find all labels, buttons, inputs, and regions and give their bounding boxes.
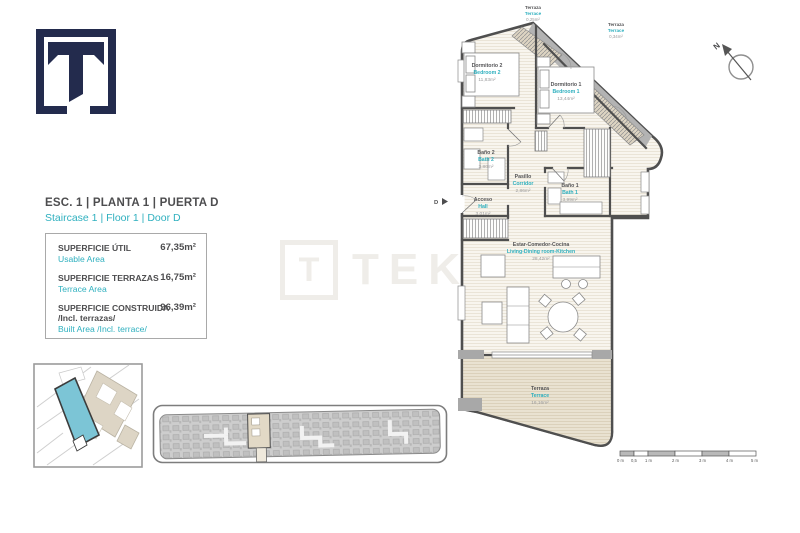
svg-text:0,25m²: 0,25m² bbox=[526, 17, 540, 22]
svg-text:3,80m²: 3,80m² bbox=[479, 164, 494, 170]
svg-text:5 m: 5 m bbox=[751, 458, 758, 463]
svg-text:0,5: 0,5 bbox=[631, 458, 637, 463]
svg-text:Bath 1: Bath 1 bbox=[562, 190, 578, 196]
company-logo bbox=[33, 28, 121, 120]
svg-text:Acceso: Acceso bbox=[474, 197, 492, 203]
svg-text:Pasillo: Pasillo bbox=[515, 174, 532, 180]
room-label-bath-2: Baño 2 Bath 2 3,80m² bbox=[477, 150, 494, 170]
compass-icon: N bbox=[712, 41, 753, 80]
svg-text:Terrace: Terrace bbox=[531, 393, 549, 399]
svg-text:Bedroom 2: Bedroom 2 bbox=[473, 70, 500, 76]
svg-text:Terraza: Terraza bbox=[608, 22, 624, 27]
scale-bar: 0 m 0,5 1 m 2 m 3 m 4 m 5 m bbox=[617, 451, 758, 463]
svg-text:Baño 1: Baño 1 bbox=[561, 183, 578, 189]
svg-text:3,99m²: 3,99m² bbox=[563, 197, 578, 203]
logo-t-icon bbox=[48, 42, 104, 102]
svg-text:Bath 2: Bath 2 bbox=[478, 157, 494, 163]
entry-door-marker: D bbox=[434, 198, 448, 206]
room-label-corridor: Pasillo Corridor 2,86m² bbox=[513, 174, 534, 194]
svg-text:Terrace: Terrace bbox=[608, 28, 625, 33]
svg-text:0,34m²: 0,34m² bbox=[609, 34, 623, 39]
svg-text:Terraza: Terraza bbox=[525, 5, 541, 10]
compass-north-label: N bbox=[712, 41, 722, 52]
svg-text:Corridor: Corridor bbox=[513, 181, 534, 187]
room-label-bath-1: Baño 1 Bath 1 3,99m² bbox=[561, 183, 578, 203]
svg-text:3 m: 3 m bbox=[699, 458, 706, 463]
svg-text:Hall: Hall bbox=[478, 204, 488, 210]
room-label-terrace-small-1: Terraza Terrace 0,25m² bbox=[525, 5, 542, 22]
room-label-terrace-main: Terraza Terrace 16,16m² bbox=[531, 386, 549, 406]
svg-text:Estar-Comedor-Cocina: Estar-Comedor-Cocina bbox=[513, 242, 570, 248]
svg-text:11,83m²: 11,83m² bbox=[478, 77, 496, 83]
svg-text:16,16m²: 16,16m² bbox=[531, 400, 549, 406]
svg-text:Baño 2: Baño 2 bbox=[477, 150, 494, 156]
svg-text:Dormitorio 2: Dormitorio 2 bbox=[472, 63, 503, 69]
svg-text:Terraza: Terraza bbox=[531, 386, 549, 392]
svg-text:13,44m²: 13,44m² bbox=[557, 96, 575, 102]
room-label-terrace-small-2: Terraza Terrace 0,34m² bbox=[608, 22, 625, 39]
svg-text:1 m: 1 m bbox=[645, 458, 652, 463]
door-marker-label: D bbox=[434, 200, 438, 206]
svg-text:3,01m²: 3,01m² bbox=[476, 211, 491, 217]
svg-text:4 m: 4 m bbox=[726, 458, 733, 463]
svg-text:Dormitorio 1: Dormitorio 1 bbox=[551, 82, 582, 88]
svg-text:Terrace: Terrace bbox=[525, 11, 542, 16]
svg-text:0 m: 0 m bbox=[617, 458, 624, 463]
svg-text:2,86m²: 2,86m² bbox=[516, 188, 531, 194]
key-plan bbox=[152, 404, 448, 464]
door-arrow-icon bbox=[442, 198, 448, 205]
svg-text:28,42m²: 28,42m² bbox=[532, 256, 550, 262]
svg-text:Bedroom 1: Bedroom 1 bbox=[552, 89, 579, 95]
svg-text:2 m: 2 m bbox=[672, 458, 679, 463]
svg-text:Living-Dining room-Kitchen: Living-Dining room-Kitchen bbox=[507, 249, 575, 255]
site-plan-map bbox=[33, 363, 143, 468]
